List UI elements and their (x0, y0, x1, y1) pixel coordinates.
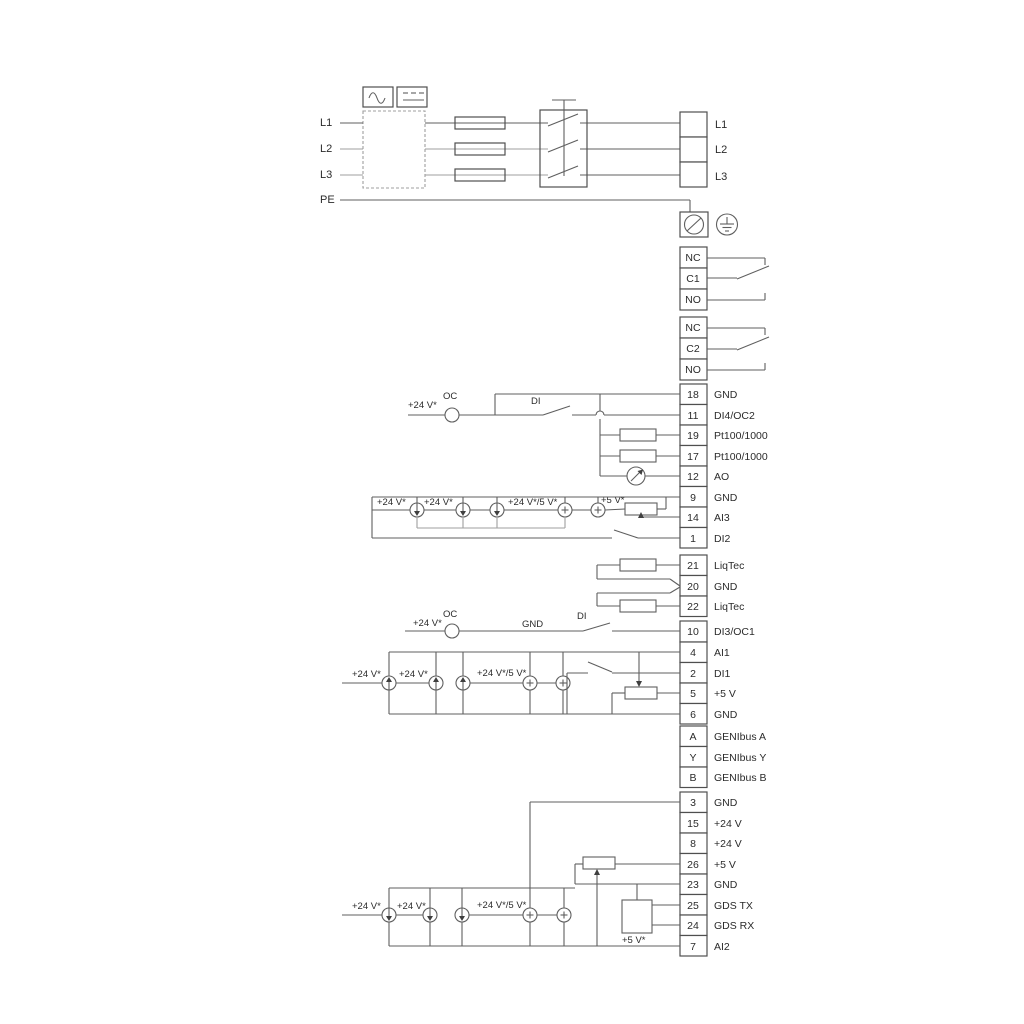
relay2-contact (707, 328, 769, 370)
ai1-options-circuit: +24 V* +24 V* +24 V*/5 V* (342, 652, 680, 714)
resistor-icon (620, 559, 656, 571)
plus24v-label: +24 V* (352, 901, 381, 912)
earth-icon (717, 214, 738, 235)
terminal-number: 11 (688, 410, 699, 422)
terminal-number: 22 (687, 601, 699, 613)
current-source-icon (410, 503, 424, 517)
terminal-number: NO (685, 364, 701, 376)
terminal-group-c: 10 DI3/OC1 (680, 621, 755, 642)
terminal-label: L3 (715, 171, 727, 183)
gds-sensor-box (622, 884, 680, 933)
terminal-number: NC (685, 322, 701, 334)
plus24v-label: +24 V* (352, 669, 381, 680)
terminal-label: L2 (715, 144, 727, 156)
relay1-contact (707, 258, 769, 300)
terminal-group-f: 3 GND 15 +24 V 8 +24 V 26 +5 V 23 GND 25… (680, 792, 754, 956)
di3-oc1-circuit: +24 V* OC GND DI (405, 609, 680, 638)
terminal-group-a: 18 GND 11 DI4/OC2 19 Pt100/1000 17 Pt100… (680, 384, 768, 548)
plus24v-label: +24 V* (397, 901, 426, 912)
open-collector-icon (445, 408, 459, 422)
mains-l2-label: L2 (320, 143, 332, 155)
terminal-label: GND (714, 492, 738, 504)
voltage-source-icon (523, 908, 537, 922)
terminal-label: AI3 (714, 512, 730, 524)
mains-terminal-block: L1 L2 L3 (680, 112, 727, 187)
current-source-icon (423, 908, 437, 922)
terminal-number: 10 (687, 626, 699, 638)
terminal-label: GND (714, 581, 738, 593)
terminal-number: 5 (690, 688, 696, 700)
mains-pe-label: PE (320, 194, 335, 206)
terminal-number: 23 (687, 879, 699, 891)
terminal-number: 26 (687, 859, 699, 871)
potentiometer-icon (625, 497, 680, 518)
terminal-number: 19 (687, 430, 699, 442)
terminal-label: GND (714, 709, 738, 721)
relay2-terminal-block: NC C2 NO (680, 317, 707, 380)
resistor-icon (620, 600, 656, 612)
voltage-source-icon (557, 908, 571, 922)
terminal-number: 12 (687, 471, 699, 483)
terminal-number: 8 (690, 838, 696, 850)
main-switch (540, 100, 587, 187)
terminal-group-b: 21 LiqTec 20 GND 22 LiqTec (680, 555, 744, 617)
terminal-label: LiqTec (714, 560, 744, 572)
terminal-number: 24 (687, 920, 699, 932)
potentiometer-icon (612, 652, 680, 714)
di-label: DI (577, 611, 587, 622)
terminal-label: GND (714, 879, 738, 891)
terminal-label: AI2 (714, 941, 730, 953)
terminal-number: 4 (690, 647, 696, 659)
dc-icon (397, 87, 427, 107)
terminal-label: +24 V (714, 818, 742, 830)
terminal-label: +5 V (714, 688, 736, 700)
di-label: DI (531, 396, 541, 407)
pt100-sensor-1 (600, 429, 680, 441)
resistor-icon (620, 450, 656, 462)
terminal-label: GDS RX (714, 920, 754, 932)
terminal-label: LiqTec (714, 601, 744, 613)
terminal-label: GND (714, 389, 738, 401)
terminal-number: 15 (687, 818, 699, 830)
terminal-number: A (689, 731, 696, 743)
terminal-number: 3 (690, 797, 696, 809)
terminal-number: 17 (687, 451, 699, 463)
relay1-terminal-block: NC C1 NO (680, 247, 707, 310)
terminal-number: B (689, 772, 696, 784)
terminal-label: AO (714, 471, 729, 483)
current-source-icon (382, 676, 396, 690)
current-source-icon (456, 676, 470, 690)
current-source-icon (455, 908, 469, 922)
terminal-label: GENIbus Y (714, 752, 766, 764)
ai2-options-circuit: +24 V* +24 V* +24 V*/5 V* +5 V* (342, 802, 680, 946)
terminal-number: 14 (687, 512, 699, 524)
open-collector-icon (445, 624, 459, 638)
resistor-icon (620, 429, 656, 441)
oc-label: OC (443, 609, 457, 620)
current-source-icon (456, 503, 470, 517)
terminal-label: GDS TX (714, 900, 753, 912)
terminal-number: 25 (687, 900, 699, 912)
pe-wire (340, 200, 690, 212)
plus24v-label: +24 V* (377, 497, 406, 508)
terminal-group-e: A GENIbus A Y GENIbus Y B GENIbus B (680, 726, 767, 788)
plus24v-label: +24 V* (424, 497, 453, 508)
emc-filter-box (363, 111, 425, 188)
plus24v-5v-label: +24 V*/5 V* (477, 900, 527, 911)
terminal-label: +24 V (714, 838, 742, 850)
voltage-source-icon (556, 676, 570, 690)
ai3-options-circuit: +24 V* +24 V* +24 V*/5 V* +5 V* (372, 495, 680, 538)
terminal-label: Pt100/1000 (714, 430, 768, 442)
screw-terminal-icon (680, 212, 708, 237)
voltage-source-icon (523, 676, 537, 690)
di1-switch (567, 662, 680, 714)
plus24v-label: +24 V* (408, 400, 437, 411)
terminal-label: DI3/OC1 (714, 626, 755, 638)
terminal-number: 6 (690, 709, 696, 721)
terminal-number: 9 (690, 492, 696, 504)
mains-wires (340, 123, 680, 175)
current-source-icon (382, 908, 396, 922)
terminal-label: GND (714, 797, 738, 809)
terminal-number: NO (685, 294, 701, 306)
terminal-group-d: 4 AI1 2 DI1 5 +5 V 6 GND (680, 642, 738, 724)
voltage-source-icon (558, 503, 572, 517)
plus24v-label: +24 V* (413, 618, 442, 629)
pt100-sensor-2 (600, 450, 680, 462)
terminal-label: GENIbus B (714, 772, 767, 784)
voltage-source-icon (591, 503, 605, 517)
wiring-diagram-page: L1 L2 L3 PE (0, 0, 1024, 1024)
oc-label: OC (443, 391, 457, 402)
wiring-diagram: L1 L2 L3 PE (0, 0, 1024, 1024)
terminal-number: NC (685, 252, 701, 264)
terminal-number: C2 (686, 343, 700, 355)
terminal-label: GENIbus A (714, 731, 766, 743)
mains-input-labels: L1 L2 L3 PE (320, 117, 335, 206)
terminal-label: DI1 (714, 668, 731, 680)
terminal-label: DI4/OC2 (714, 410, 755, 422)
terminal-number: C1 (686, 273, 700, 285)
current-source-icon (490, 503, 504, 517)
mains-l3-label: L3 (320, 169, 332, 181)
current-source-icon (429, 676, 443, 690)
terminal-number: 18 (687, 389, 699, 401)
terminal-number: Y (689, 752, 696, 764)
terminal-number: 2 (690, 668, 696, 680)
terminal-label: DI2 (714, 533, 731, 545)
ac-icon (363, 87, 393, 107)
gnd-label: GND (522, 619, 543, 630)
liqtec-sensor-circuit (597, 559, 680, 612)
terminal-label: AI1 (714, 647, 730, 659)
terminal-number: 21 (687, 560, 699, 572)
mains-l1-label: L1 (320, 117, 332, 129)
plus5v-label: +5 V* (622, 935, 646, 946)
terminal-label: +5 V (714, 859, 736, 871)
plus24v-5v-label: +24 V*/5 V* (508, 497, 558, 508)
terminal-number: 1 (690, 533, 696, 545)
terminal-label: Pt100/1000 (714, 451, 768, 463)
terminal-number: 7 (690, 941, 696, 953)
terminal-number: 20 (687, 581, 699, 593)
analog-output-circuit (600, 467, 680, 485)
plus24v-5v-label: +24 V*/5 V* (477, 668, 527, 679)
plus24v-label: +24 V* (399, 669, 428, 680)
terminal-label: L1 (715, 119, 727, 131)
